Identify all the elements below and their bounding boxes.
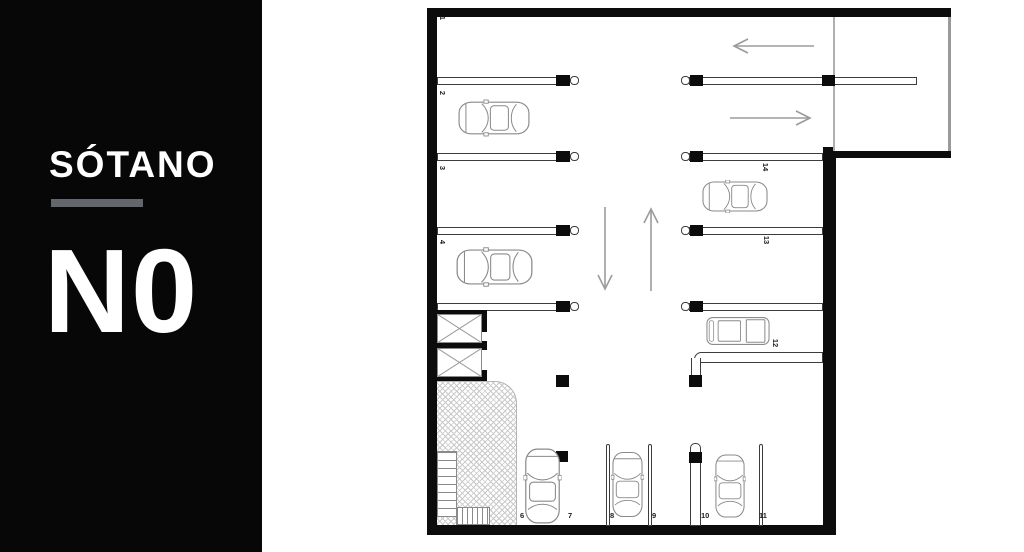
- wall-right: [823, 147, 836, 535]
- divider-cap: [570, 226, 579, 235]
- parking-divider: [689, 303, 823, 311]
- sedan-top-icon: [458, 97, 530, 139]
- column: [822, 75, 835, 86]
- column: [690, 301, 703, 312]
- column: [556, 225, 570, 236]
- stall-label-11: 11: [759, 512, 767, 520]
- stall-label-9: 9: [652, 512, 656, 520]
- arrow-right-icon: [726, 109, 818, 127]
- sedan-top-icon: [701, 180, 769, 213]
- parking-divider: [689, 227, 823, 235]
- parking-divider: [689, 153, 823, 161]
- column: [690, 75, 703, 86]
- floor-plan: 1 2 3 4 14 13 12 6 7 8 9 10 11: [0, 0, 1024, 552]
- sedan-top-icon: [456, 247, 533, 287]
- stall-label-3: 3: [436, 163, 448, 173]
- stall-label-7: 7: [568, 512, 572, 520]
- stall-label-6: 6: [520, 512, 524, 520]
- wall-bottom: [427, 525, 836, 535]
- sedan-top-icon: [714, 451, 746, 521]
- column: [690, 225, 703, 236]
- stall-label-1: 1: [436, 13, 448, 23]
- stall-label-2: 2: [436, 88, 448, 98]
- stall-label-10: 10: [701, 512, 709, 520]
- column: [689, 452, 702, 463]
- arrow-up-icon: [642, 204, 660, 294]
- parking-divider: [437, 227, 570, 235]
- parking-divider: [689, 77, 917, 85]
- wall-top: [427, 8, 951, 17]
- stall-label-13: 13: [760, 235, 772, 245]
- divider-cap: [570, 302, 579, 311]
- stall-label-8: 8: [610, 512, 614, 520]
- column: [690, 151, 703, 162]
- stall-label-14: 14: [759, 162, 771, 172]
- column: [556, 151, 570, 162]
- stairs-icon: [437, 451, 457, 517]
- sedan-top-icon: [524, 448, 562, 525]
- column: [689, 375, 702, 387]
- arrow-down-icon: [596, 204, 614, 294]
- truck-top-icon: [706, 314, 770, 348]
- sedan-top-icon: [611, 447, 644, 522]
- stall-label-4: 4: [436, 237, 448, 247]
- divider-cap: [570, 152, 579, 161]
- stall-label-12: 12: [769, 338, 781, 348]
- ramp-right-border: [948, 17, 951, 151]
- divider-cap: [570, 76, 579, 85]
- aisle-edge: [694, 352, 823, 363]
- ramp-bottom-wall: [833, 151, 951, 158]
- parking-divider: [437, 77, 570, 85]
- column: [556, 301, 570, 312]
- column: [556, 75, 570, 86]
- column: [556, 375, 569, 387]
- elevator-shaft-icon: [437, 310, 487, 381]
- parking-divider: [437, 153, 570, 161]
- arrow-left-icon: [726, 37, 818, 55]
- stairs-icon: [456, 507, 490, 525]
